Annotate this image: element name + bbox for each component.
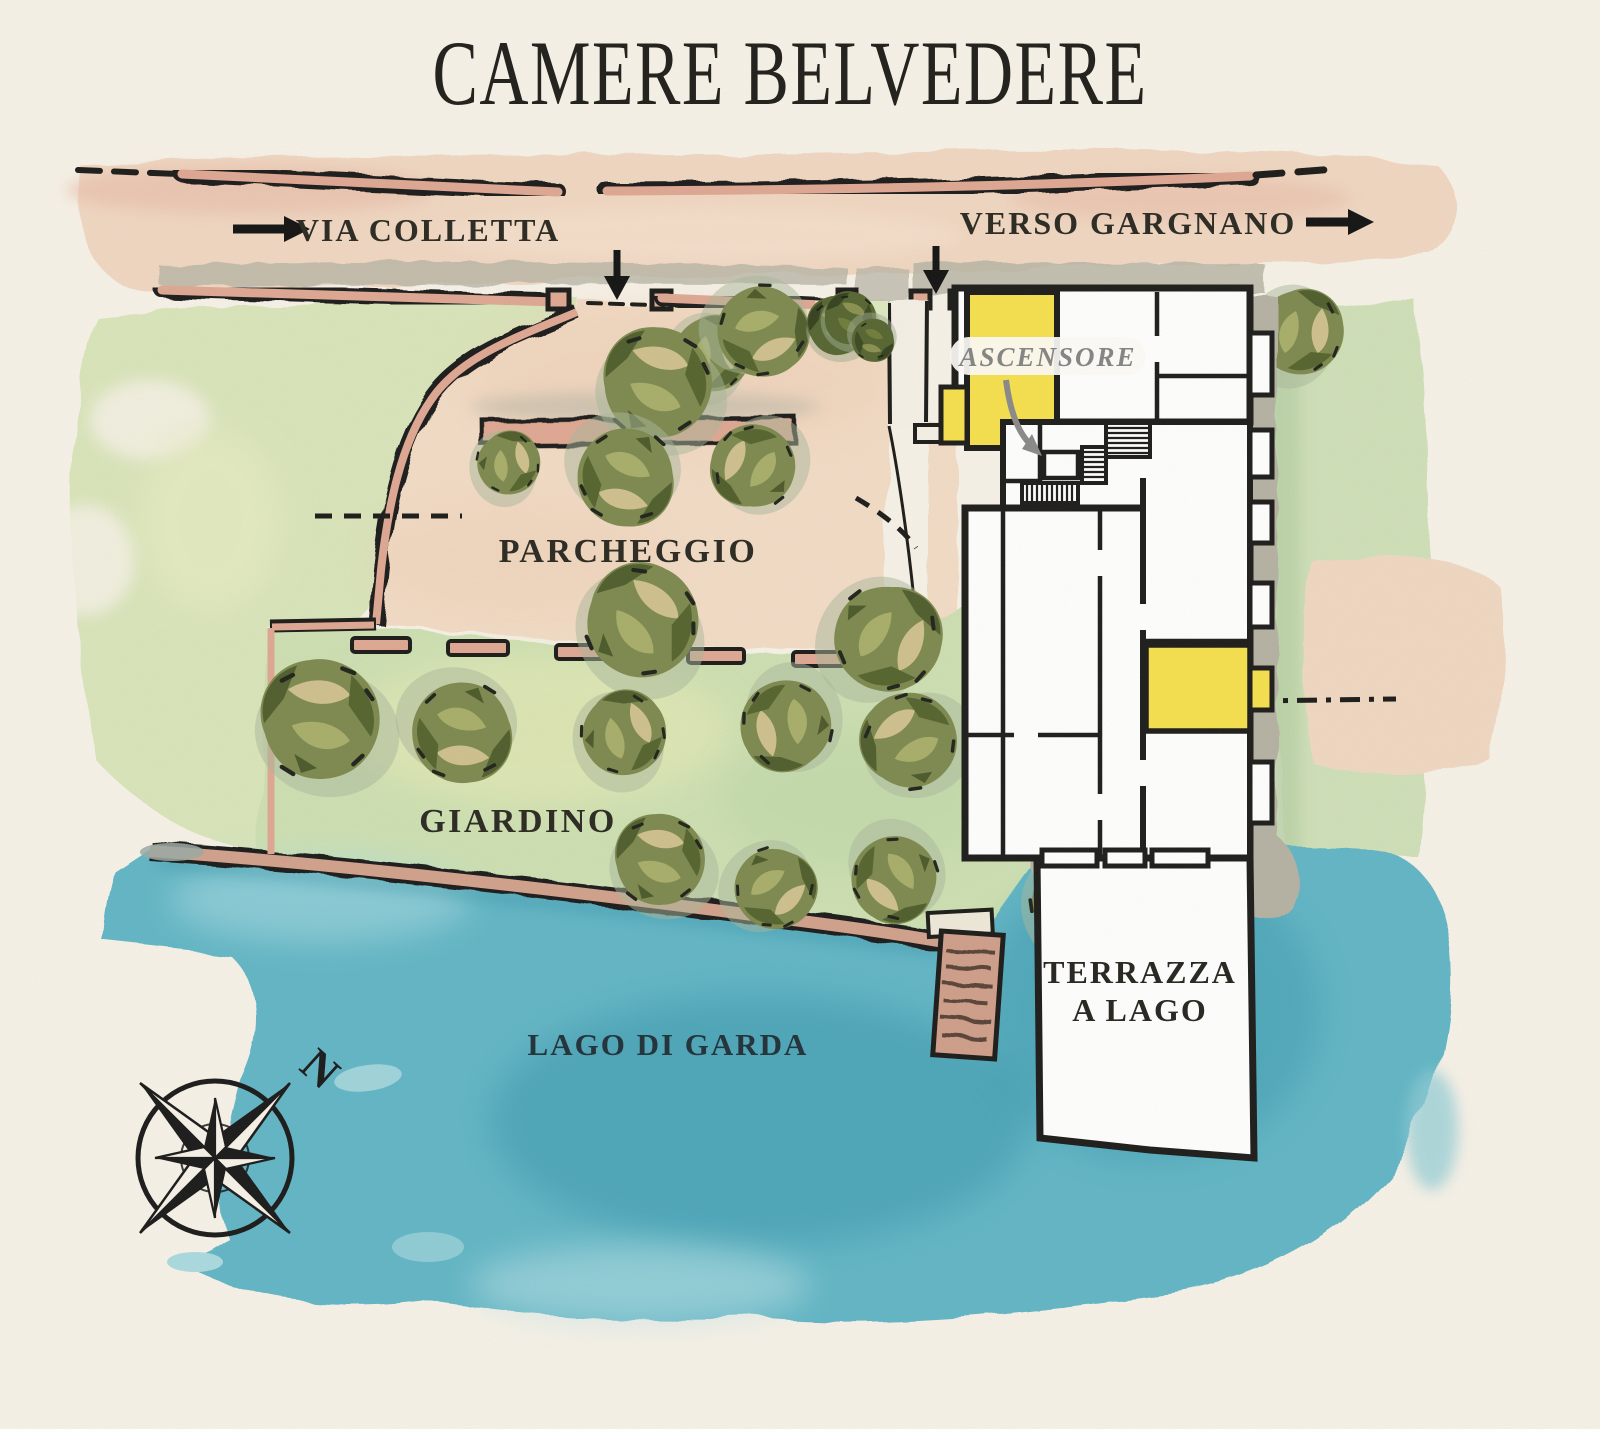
terrace-label-line2: A LAGO <box>1072 992 1208 1028</box>
right-peach-area <box>1302 555 1504 773</box>
elevator-box <box>1044 452 1078 478</box>
balcony <box>1250 583 1272 627</box>
compass-points <box>129 1072 300 1243</box>
terrace-label-line1: TERRAZZA <box>1043 954 1237 990</box>
lake-label: LAGO DI GARDA <box>528 1027 809 1062</box>
balcony <box>1250 502 1272 543</box>
street-label-verso-gargnano: VERSO GARGNANO <box>960 205 1296 241</box>
room-highlight-annex <box>941 387 967 443</box>
site-map: ASCENSORE CAMERE BELVEDERE VIA COLLETTA … <box>0 0 1600 1429</box>
site-map-page: ASCENSORE CAMERE BELVEDERE VIA COLLETTA … <box>0 0 1600 1429</box>
balcony <box>1250 333 1272 395</box>
balcony-highlight <box>1250 668 1272 710</box>
area-label-giardino: GIARDINO <box>419 803 617 840</box>
area-label-parcheggio: PARCHEGGIO <box>499 533 758 570</box>
page-title: CAMERE BELVEDERE <box>432 22 1147 124</box>
street-label-via-colletta: VIA COLLETTA <box>296 212 560 248</box>
balcony <box>1250 430 1272 477</box>
room-highlight-mid <box>1146 645 1250 731</box>
balcony <box>1250 762 1272 823</box>
elevator-label: ASCENSORE <box>957 342 1136 372</box>
